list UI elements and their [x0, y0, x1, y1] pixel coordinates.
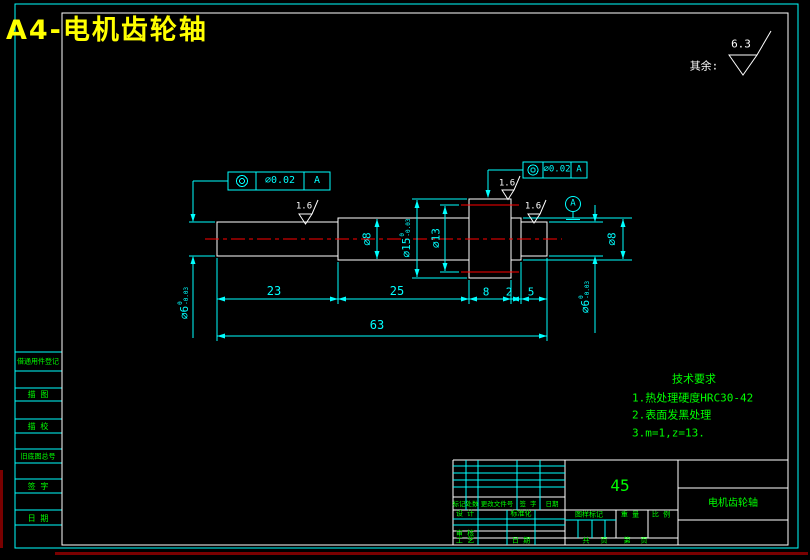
- datum-flag-label: A: [570, 200, 575, 209]
- dim-dia8-mid: ⌀8: [362, 232, 373, 245]
- tol-lower: -0.03: [406, 219, 412, 237]
- part-name: 电机齿轮轴: [708, 499, 758, 509]
- tolerance-1-value: ⌀0.02: [265, 176, 295, 186]
- dia-tolerance: 0 -0.03: [178, 287, 190, 305]
- viewport-artifact-lines: [0, 470, 808, 555]
- side-col-borrow-record: 借通用件登记: [17, 359, 59, 366]
- surface-default-label: 其余:: [690, 61, 719, 72]
- roughness-value-2: 1.6: [499, 180, 515, 189]
- material-value: 45: [610, 478, 629, 494]
- tb-sign-label: 签 字: [520, 501, 537, 508]
- tb-design-label: 设 计: [456, 511, 474, 518]
- dia-value: ⌀6: [179, 306, 190, 319]
- dim-2: 2: [506, 287, 513, 298]
- tb-total-label: 共: [583, 538, 590, 545]
- tech-req-item-1: 1.热处理硬度HRC30-42: [632, 393, 753, 404]
- concentricity-icon: [528, 165, 538, 175]
- centerline: [205, 205, 562, 272]
- dia-value: ⌀15: [401, 238, 412, 258]
- dia-value: ⌀8: [607, 232, 618, 245]
- paper-border-cyan: [15, 4, 798, 548]
- tb-mark-label: 标记: [453, 501, 466, 508]
- tb-date-label: 日期: [546, 501, 559, 508]
- inner-frame-white: [62, 13, 788, 545]
- dim-dia6-right: ⌀6 0 -0.03: [579, 281, 591, 313]
- side-col-trace-draw: 描 图: [28, 391, 49, 399]
- tb-weight-label: 重 量: [621, 512, 639, 519]
- tol-lower: -0.03: [585, 281, 591, 299]
- dia-value: ⌀13: [431, 228, 442, 248]
- dia-value: ⌀6: [580, 300, 591, 313]
- dia-value: ⌀8: [362, 232, 373, 245]
- dim-dia15: ⌀15 0 -0.03: [400, 219, 412, 258]
- tb-process-label: 工 艺: [456, 538, 474, 545]
- tolerance-2-datum: A: [576, 166, 581, 175]
- concentricity-icon: [237, 176, 248, 187]
- tech-req-item-2: 2.表面发黑处理: [632, 410, 711, 421]
- drawing-title: A4-电机齿轮轴: [6, 8, 208, 47]
- tb-sheet-label: 页: [601, 538, 608, 545]
- side-col-date: 日 期: [28, 515, 49, 523]
- side-col-signature: 签 字: [28, 483, 49, 491]
- tb-scale-label: 比 例: [652, 512, 670, 519]
- dim-5: 5: [528, 287, 535, 298]
- roughness-value-1: 1.6: [296, 203, 312, 212]
- side-col-trace-check: 描 校: [28, 423, 49, 431]
- tb-no-label: 第: [624, 538, 631, 545]
- tech-req-item-3: 3.m=1,z=13.: [632, 428, 705, 439]
- dim-8: 8: [483, 287, 490, 298]
- dim-23: 23: [267, 285, 281, 297]
- tb-count-label: 处数: [466, 501, 479, 508]
- side-col-old-drawing-no: 旧底图总号: [21, 454, 56, 461]
- dia-tolerance: 0 -0.03: [579, 281, 591, 299]
- tol-lower: -0.03: [184, 287, 190, 305]
- surface-default-value: 6.3: [731, 39, 751, 50]
- dim-dia8-right: ⌀8: [607, 232, 618, 245]
- dim-63: 63: [370, 319, 384, 331]
- dia-tolerance: 0 -0.03: [400, 219, 412, 237]
- roughness-value-3: 1.6: [525, 203, 541, 212]
- tech-req-title: 技术要求: [672, 374, 716, 385]
- tb-date2-label: 日 期: [512, 538, 530, 545]
- drawing-linework: [0, 0, 810, 560]
- tolerance-1-datum: A: [314, 176, 320, 186]
- tb-standard-label: 标准化: [511, 511, 532, 518]
- dimension-arrowheads: [191, 190, 626, 339]
- dim-dia13: ⌀13: [431, 228, 442, 248]
- dim-25: 25: [390, 285, 404, 297]
- tolerance-2-value: ⌀0.02: [543, 166, 570, 175]
- dim-dia6-left: ⌀6 0 -0.03: [178, 287, 190, 319]
- cad-drawing-canvas: A4-电机齿轮轴 其余: 6.3 ⌀0.02 A ⌀0.02 A A 1.6 1…: [0, 0, 810, 560]
- tb-sheet2-label: 页: [641, 538, 648, 545]
- tb-change-doc-label: 更改文件号: [481, 501, 514, 508]
- tb-drawing-mark-label: 图样标记: [575, 512, 603, 519]
